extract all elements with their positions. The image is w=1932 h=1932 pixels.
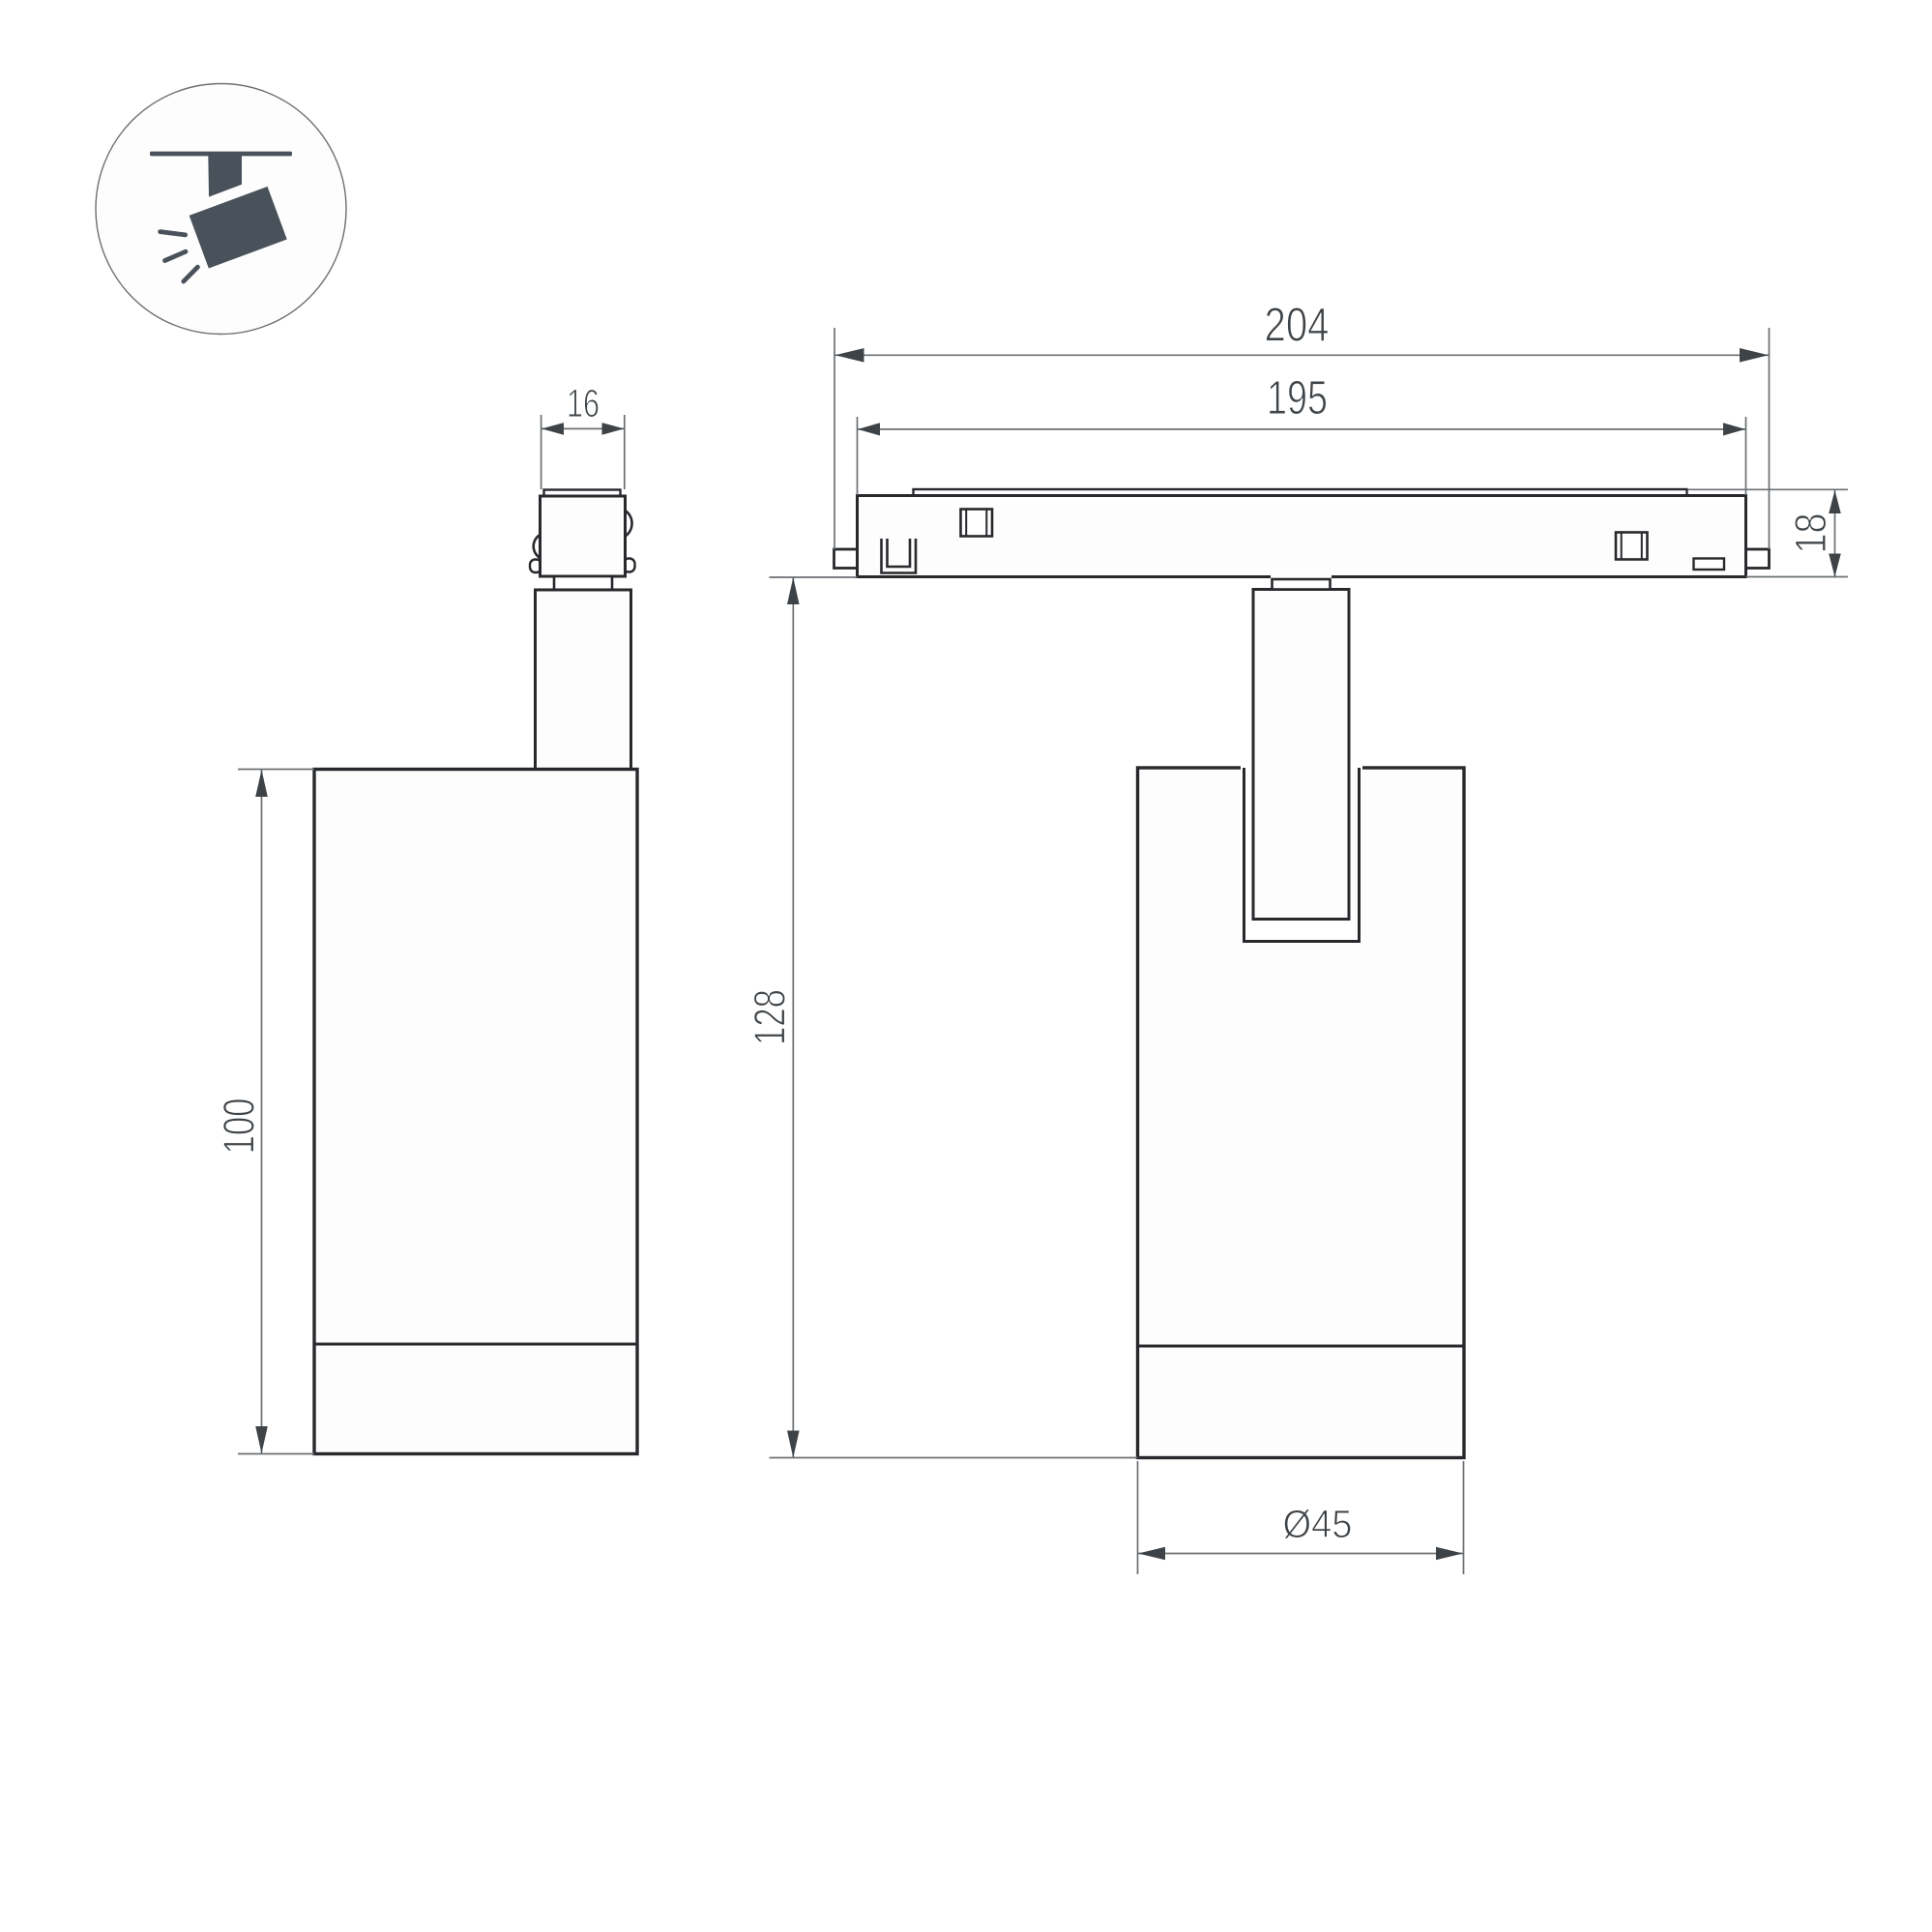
svg-text:195: 195	[1267, 372, 1328, 424]
svg-text:128: 128	[746, 989, 795, 1045]
svg-text:100: 100	[215, 1098, 264, 1155]
svg-text:Ø45: Ø45	[1283, 1502, 1353, 1546]
svg-text:204: 204	[1265, 300, 1330, 352]
svg-text:16: 16	[567, 381, 600, 425]
svg-text:18: 18	[1786, 513, 1835, 554]
